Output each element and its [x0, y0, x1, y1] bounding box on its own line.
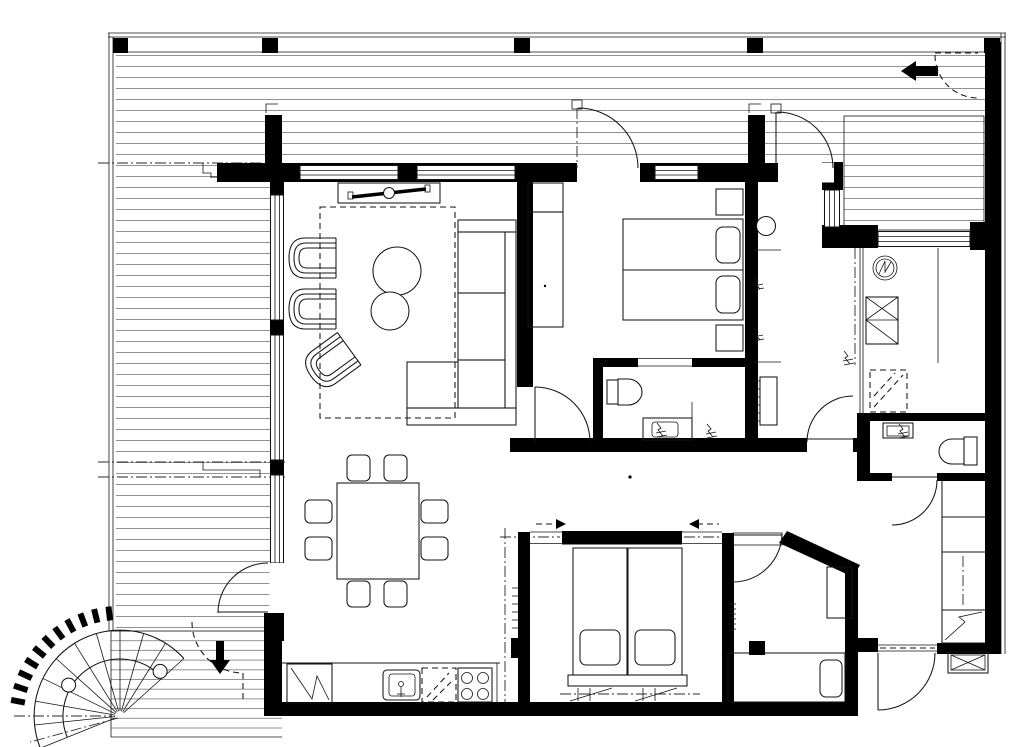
pillow [635, 630, 675, 665]
pillow [580, 630, 620, 665]
deck-platform [844, 116, 984, 230]
bedroom-1 [528, 183, 743, 351]
washbasin [757, 217, 776, 236]
door-bedroom3 [733, 533, 782, 582]
kitchen [282, 663, 500, 703]
south-wall [264, 702, 858, 716]
deck-left-strip [116, 165, 270, 631]
vanity-sink [883, 423, 913, 438]
nightstand [716, 189, 743, 215]
single-bed [728, 653, 845, 702]
window-band [300, 166, 398, 180]
pillow [820, 660, 842, 697]
bedroom-2 [512, 548, 687, 701]
floor-plan-drawing [0, 0, 1024, 747]
closet-column [942, 481, 985, 643]
double-bed [568, 548, 687, 701]
kitchen-sink [383, 670, 420, 700]
ventilation-shaft [948, 652, 988, 673]
tv-console [338, 183, 440, 203]
tap-icon [843, 351, 854, 365]
window-band [655, 166, 698, 180]
dining-table [337, 483, 419, 579]
floor-dot [628, 475, 631, 478]
bedroom-3 [728, 567, 852, 702]
door-wc [892, 477, 937, 525]
tap-icon [656, 423, 667, 437]
vanity-sink [643, 418, 692, 440]
pillow [716, 276, 740, 313]
dining-area [305, 455, 448, 607]
floor-dot [544, 285, 546, 287]
dining-chairs [305, 455, 448, 607]
wardrobe [528, 183, 563, 212]
water-heater [866, 297, 898, 344]
window-band [825, 190, 840, 227]
coffee-table [371, 292, 409, 330]
bedroom1-east-wall [745, 182, 758, 452]
window-band [417, 166, 515, 180]
armchair [299, 333, 361, 393]
wing-wall-left [265, 115, 282, 163]
east-wall [985, 42, 1001, 654]
electrical-symbol [873, 256, 897, 280]
dishwasher [422, 668, 456, 702]
window-band [271, 475, 284, 563]
stair-post [62, 678, 76, 692]
armchair [289, 238, 336, 278]
corridor-wall [510, 438, 752, 452]
utility-room [843, 256, 907, 412]
door-showerroom [807, 396, 853, 442]
toilet [939, 437, 977, 465]
window-band [878, 232, 970, 247]
headboard [568, 675, 687, 686]
closet-zigzag [945, 612, 982, 640]
living-room [289, 183, 632, 479]
fridge [287, 664, 332, 703]
radiator-ticks [512, 588, 518, 628]
shower-valve-icon [706, 424, 717, 438]
door-main-entrance [878, 645, 937, 710]
shower-dashed [870, 370, 907, 412]
deck-steps-landing [111, 631, 282, 737]
sliding-panel [562, 531, 682, 545]
wing-wall-right [748, 115, 765, 163]
sliding-door-bedroom2 [530, 519, 722, 545]
wardrobe [528, 212, 563, 327]
wc [883, 423, 977, 465]
ensuite-bathroom [607, 379, 717, 440]
nightstand [716, 325, 743, 351]
pillar [749, 641, 765, 655]
stair-post [153, 664, 167, 678]
coffee-table [373, 247, 421, 295]
armchair [289, 289, 336, 329]
slide-arrow-left [689, 519, 719, 529]
bedroom2-west-wall [518, 532, 530, 702]
living-east-wall [517, 182, 533, 387]
corner-sofa [407, 220, 516, 425]
floor-plan-page [0, 0, 1024, 747]
cooktop [458, 668, 492, 702]
door-bedroom1 [535, 387, 590, 442]
slide-arrow-right [536, 519, 566, 529]
pillow [716, 227, 740, 263]
tv-swivel [384, 188, 395, 199]
toilet [607, 379, 642, 405]
pergola-posts [113, 38, 1000, 53]
window-band [271, 195, 284, 320]
double-bed [623, 219, 743, 320]
hallway [942, 481, 985, 643]
window-band [271, 335, 284, 460]
